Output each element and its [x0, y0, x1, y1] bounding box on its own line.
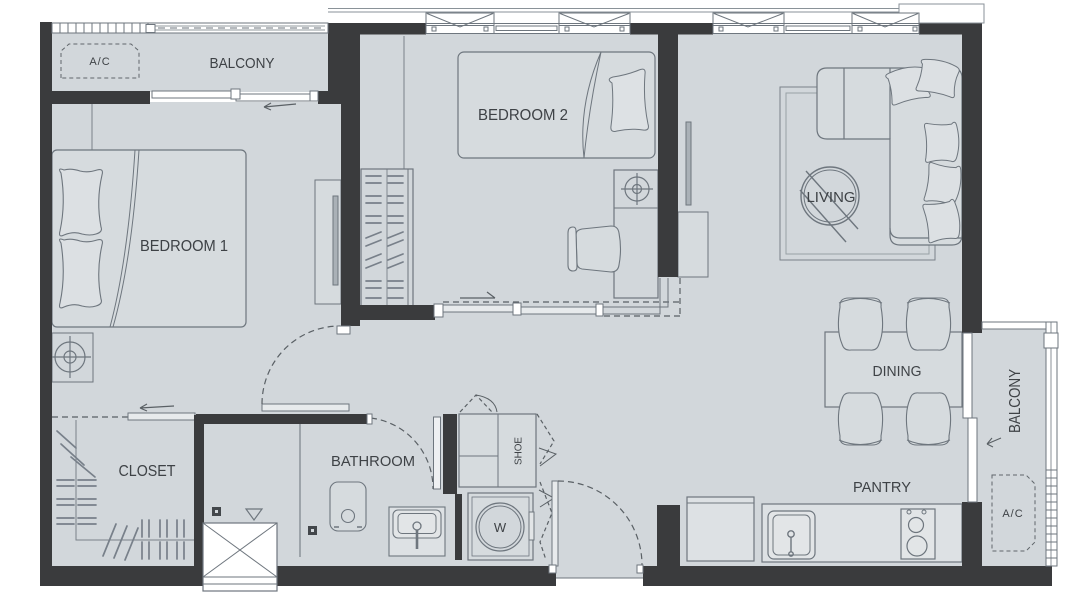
svg-text:BEDROOM 1: BEDROOM 1 [140, 238, 228, 255]
svg-text:BATHROOM: BATHROOM [331, 454, 415, 470]
svg-text:CLOSET: CLOSET [119, 463, 176, 480]
svg-text:BALCONY: BALCONY [1007, 369, 1024, 433]
svg-text:A/C: A/C [1002, 508, 1023, 520]
svg-text:SHOE: SHOE [514, 437, 525, 465]
svg-text:LIVING: LIVING [807, 189, 856, 206]
svg-text:A/C: A/C [89, 56, 110, 68]
svg-text:W: W [494, 520, 507, 535]
svg-text:PANTRY: PANTRY [853, 479, 911, 496]
svg-text:BALCONY: BALCONY [210, 55, 275, 72]
svg-text:BEDROOM 2: BEDROOM 2 [478, 107, 568, 124]
svg-text:DINING: DINING [873, 363, 922, 380]
